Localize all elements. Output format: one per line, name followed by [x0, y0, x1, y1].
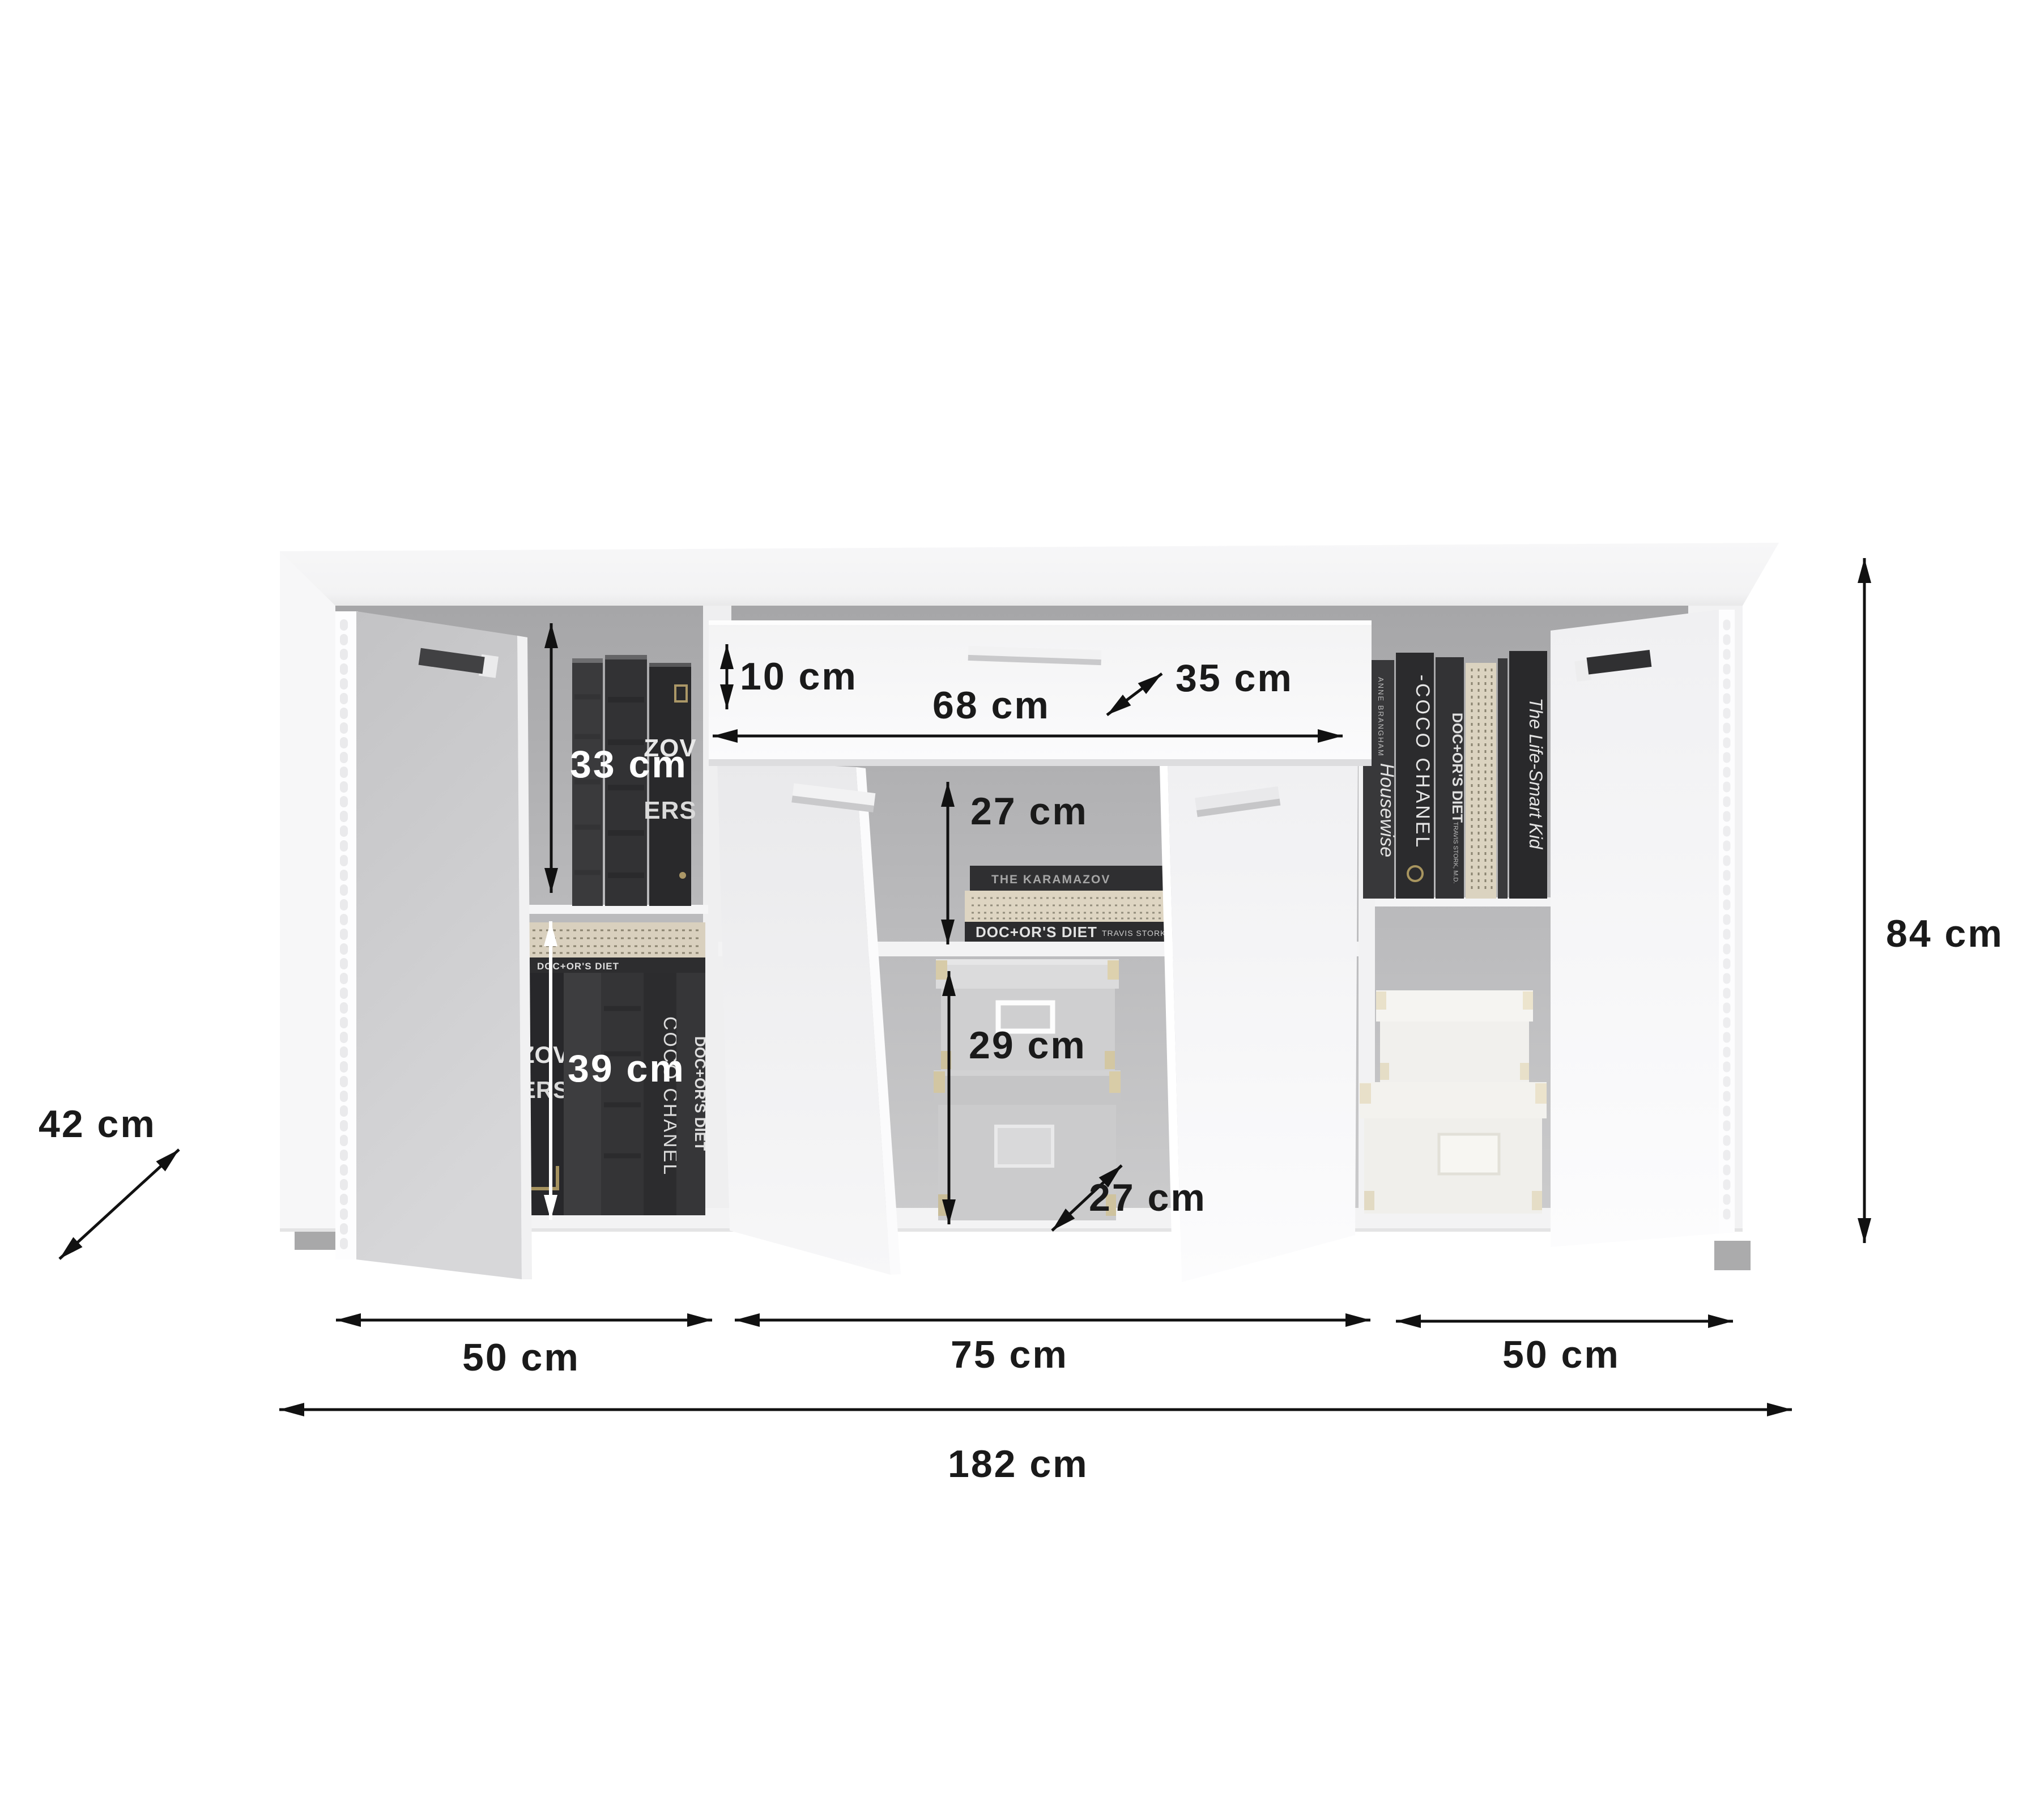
- svg-text:The Life-Smart Kid: The Life-Smart Kid: [1526, 698, 1546, 850]
- svg-text:DOC+OR'S DIET: DOC+OR'S DIET: [976, 923, 1097, 940]
- svg-text:TRAVIS STORK, M.D.: TRAVIS STORK, M.D.: [1452, 822, 1459, 884]
- svg-text:27 cm: 27 cm: [1089, 1176, 1207, 1219]
- svg-text:50 cm: 50 cm: [1502, 1333, 1620, 1376]
- svg-text:182 cm: 182 cm: [948, 1442, 1089, 1486]
- svg-text:50 cm: 50 cm: [462, 1336, 580, 1379]
- svg-text:-COCO CHANEL: -COCO CHANEL: [1412, 675, 1433, 850]
- svg-text:75 cm: 75 cm: [951, 1333, 1068, 1376]
- svg-text:27 cm: 27 cm: [970, 790, 1088, 833]
- svg-text:33 cm: 33 cm: [570, 743, 688, 786]
- svg-text:DOC+OR'S DIET: DOC+OR'S DIET: [1449, 713, 1465, 823]
- svg-text:29 cm: 29 cm: [969, 1024, 1087, 1067]
- svg-text:84 cm: 84 cm: [1886, 912, 2004, 955]
- svg-text:39 cm: 39 cm: [568, 1047, 685, 1090]
- svg-text:Housewise: Housewise: [1376, 763, 1398, 857]
- svg-text:68 cm: 68 cm: [932, 684, 1050, 727]
- svg-text:10 cm: 10 cm: [740, 655, 858, 698]
- svg-text:35 cm: 35 cm: [1176, 657, 1293, 700]
- svg-text:ANNE BRANGHAM: ANNE BRANGHAM: [1377, 677, 1385, 757]
- svg-text:ERS: ERS: [644, 797, 696, 824]
- svg-text:DOC+OR'S DIET: DOC+OR'S DIET: [692, 1036, 709, 1151]
- svg-text:THE KARAMAZOV: THE KARAMAZOV: [991, 873, 1110, 886]
- svg-text:42 cm: 42 cm: [39, 1103, 156, 1146]
